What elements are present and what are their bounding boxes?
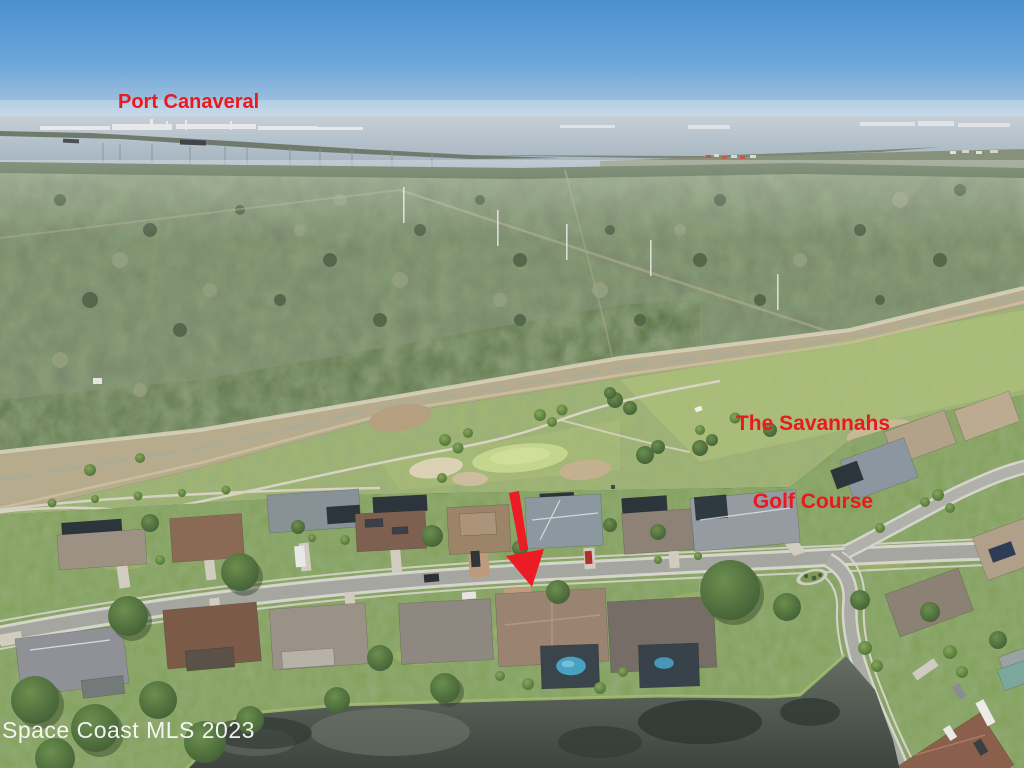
label-golf-course-line1: The Savannahs [713, 411, 913, 437]
mls-watermark: Space Coast MLS 2023 [2, 717, 255, 744]
aerial-photo: Port Canaveral The Savannahs Golf Course… [0, 0, 1024, 768]
label-port-canaveral: Port Canaveral [118, 91, 259, 114]
label-golf-course: The Savannahs Golf Course [713, 359, 913, 541]
label-golf-course-line2: Golf Course [713, 489, 913, 515]
